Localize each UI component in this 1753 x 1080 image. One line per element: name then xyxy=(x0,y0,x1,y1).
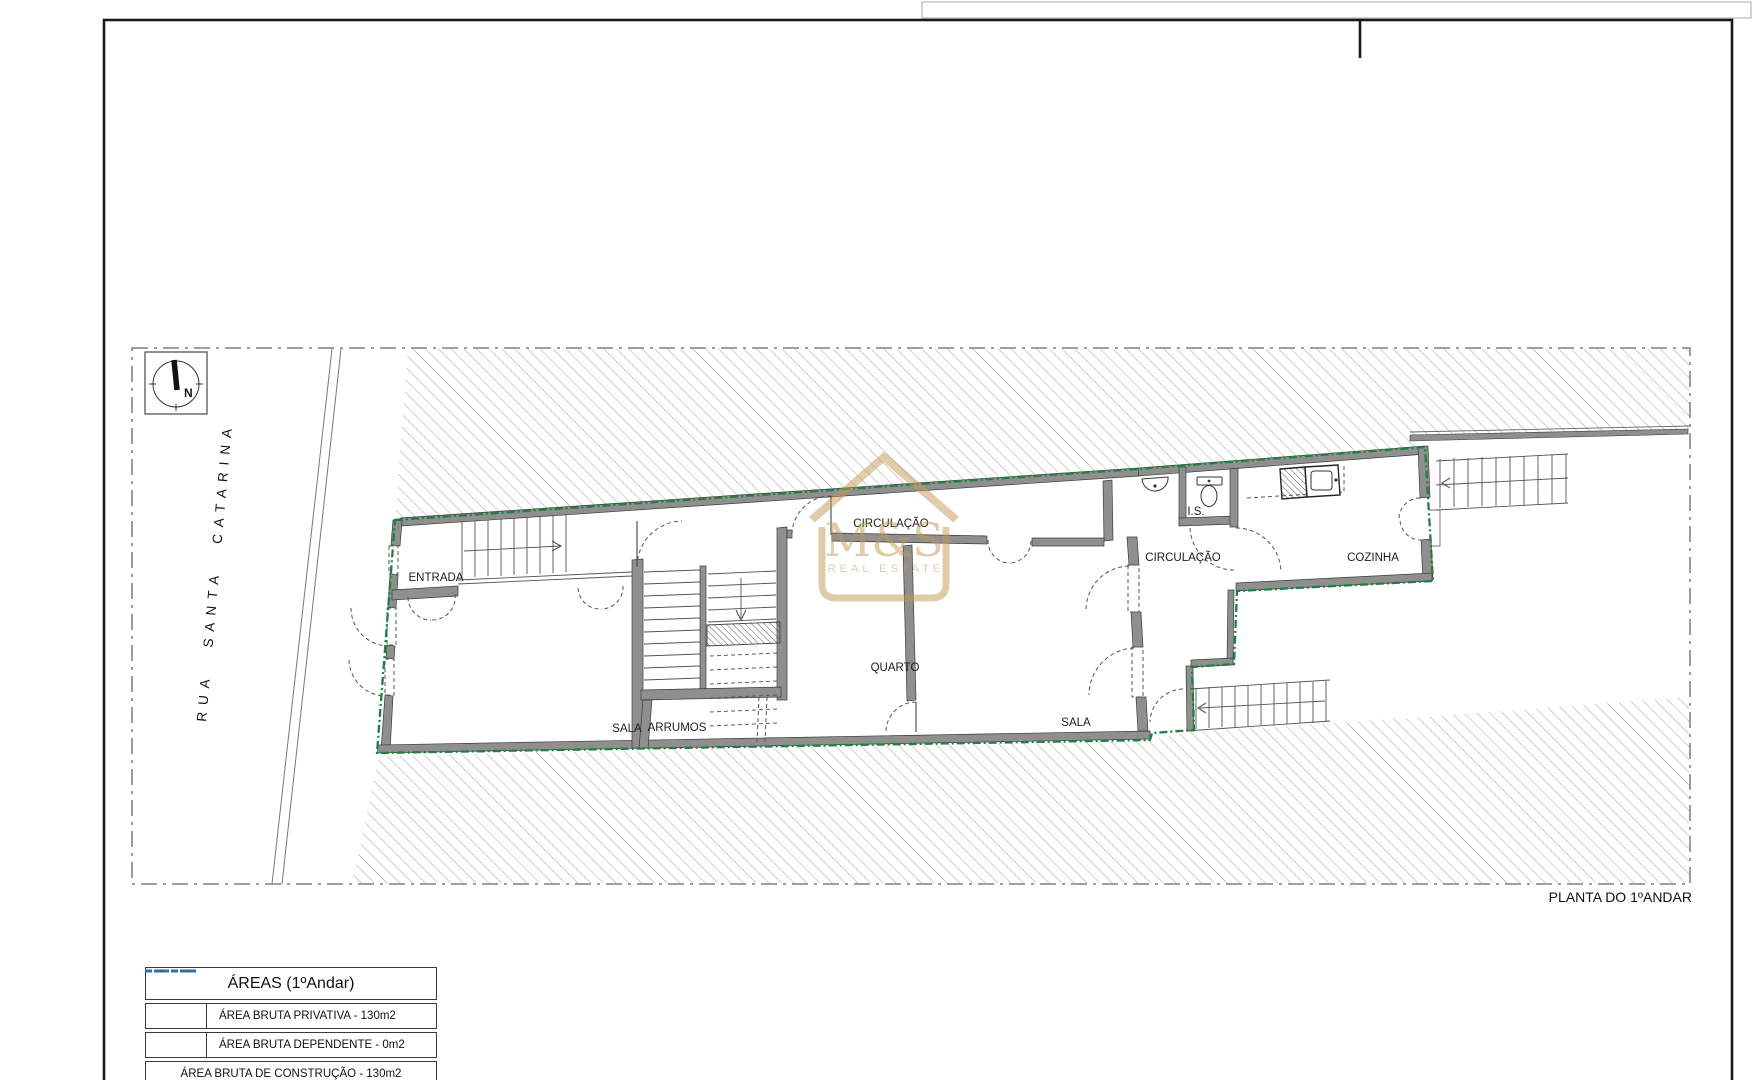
upper-exterior-stair xyxy=(1436,454,1568,510)
floor-plan-canvas: ENTRADA CIRCULAÇÃO SALA ARRUMOS QUARTO S… xyxy=(0,0,1753,1080)
legend-row-label: ÁREA BRUTA DE CONSTRUÇÃO - 130m2 xyxy=(146,1068,436,1080)
dependente-line-symbol xyxy=(146,1033,207,1057)
legend-table: ÁREAS (1ºAndar) ÁREA BRUTA PRIVATIVA - 1… xyxy=(145,967,437,1080)
watermark-name: M&S xyxy=(824,513,944,567)
legend-title-text: ÁREAS (1ºAndar) xyxy=(228,975,355,993)
legend-row-privativa: ÁREA BRUTA PRIVATIVA - 130m2 xyxy=(145,1003,437,1029)
room-label-quarto: QUARTO xyxy=(871,662,920,674)
rear-exterior-stair xyxy=(1186,680,1330,731)
room-label-sala-right: SALA xyxy=(1061,717,1091,729)
north-arrow: N xyxy=(145,352,207,414)
street-name-label: RUA SANTA CATARINA xyxy=(194,421,235,722)
north-letter: N xyxy=(184,386,193,400)
room-label-circulacao-rear: CIRCULAÇÃO xyxy=(1145,551,1220,564)
plan-title: PLANTA DO 1ºANDAR xyxy=(1549,889,1692,905)
rear-courtyard-walls xyxy=(1410,426,1689,546)
legend-row-dependente: ÁREA BRUTA DEPENDENTE - 0m2 xyxy=(145,1032,437,1058)
room-label-is: I.S. xyxy=(1187,506,1204,518)
privativa-line-symbol xyxy=(146,1004,207,1028)
legend-row-label: ÁREA BRUTA DEPENDENTE - 0m2 xyxy=(207,1039,405,1051)
watermark-tagline: REAL ESTATE xyxy=(828,563,945,575)
street-edge-lines xyxy=(272,349,341,884)
legend-row-label: ÁREA BRUTA PRIVATIVA - 130m2 xyxy=(207,1010,396,1022)
legend-row-construcao: ÁREA BRUTA DE CONSTRUÇÃO - 130m2 xyxy=(145,1061,437,1080)
room-label-cozinha: COZINHA xyxy=(1347,552,1399,564)
room-label-arrumos: ARRUMOS xyxy=(648,722,707,734)
kitchen-sink-icon xyxy=(1280,465,1340,499)
room-label-sala-left: SALA xyxy=(612,723,642,735)
floor-plan-sheet: ENTRADA CIRCULAÇÃO SALA ARRUMOS QUARTO S… xyxy=(0,0,1753,1080)
room-label-entrada: ENTRADA xyxy=(409,572,464,584)
